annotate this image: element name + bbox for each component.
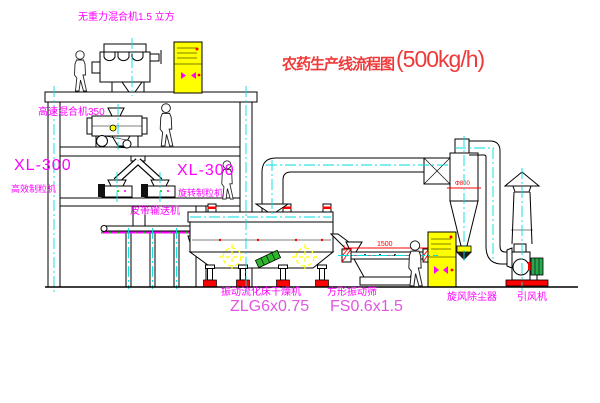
worker-top-floor [75, 51, 87, 91]
diagram-title: 农药生产线流程图 (500kg/h) [282, 46, 484, 74]
label-granulator-center-model: XL-300 [177, 163, 235, 179]
vibrating-screen: 1500 545 [342, 241, 442, 285]
induced-draft-fan [506, 244, 548, 286]
dim-cyclone-dia: Φ800 [455, 181, 470, 187]
label-cyclone: 旋风除尘器 [447, 293, 497, 303]
label-screen-name: 方形振动筛 [327, 288, 377, 298]
control-cabinet-top [174, 42, 202, 93]
label-dryer-name: 振动流化床干燥机 [221, 288, 301, 298]
label-fan: 引风机 [517, 293, 547, 303]
granulator-left [98, 180, 132, 197]
gravity-free-mixer [92, 44, 161, 92]
worker-second-floor [160, 104, 173, 146]
fluid-bed-dryer [188, 204, 354, 287]
title-capacity: (500kg/h) [396, 46, 484, 73]
control-cabinet-right [428, 232, 456, 287]
label-granulator-left-model: XL-300 [14, 158, 72, 174]
label-granulator-left-name: 高效制粒机 [11, 185, 56, 194]
title-text: 农药生产线流程图 [282, 46, 394, 74]
label-screen-model: FS0.6x1.5 [330, 299, 403, 315]
y-splitter-chute [116, 156, 160, 181]
flow-diagram: 1500 545 Φ800 [0, 0, 600, 403]
label-gravity-mixer: 无重力混合机1.5 立方 [78, 13, 175, 23]
label-high-speed-mixer: 高速混合机350 [38, 108, 105, 118]
dim-screen-width: 1500 [377, 241, 393, 248]
label-granulator-center-name: 旋转制粒机 [178, 189, 223, 198]
label-dryer-model: ZLG6x0.75 [230, 299, 309, 315]
granulator-center [141, 180, 175, 197]
label-belt-conveyor: 皮带输送机 [130, 207, 180, 217]
